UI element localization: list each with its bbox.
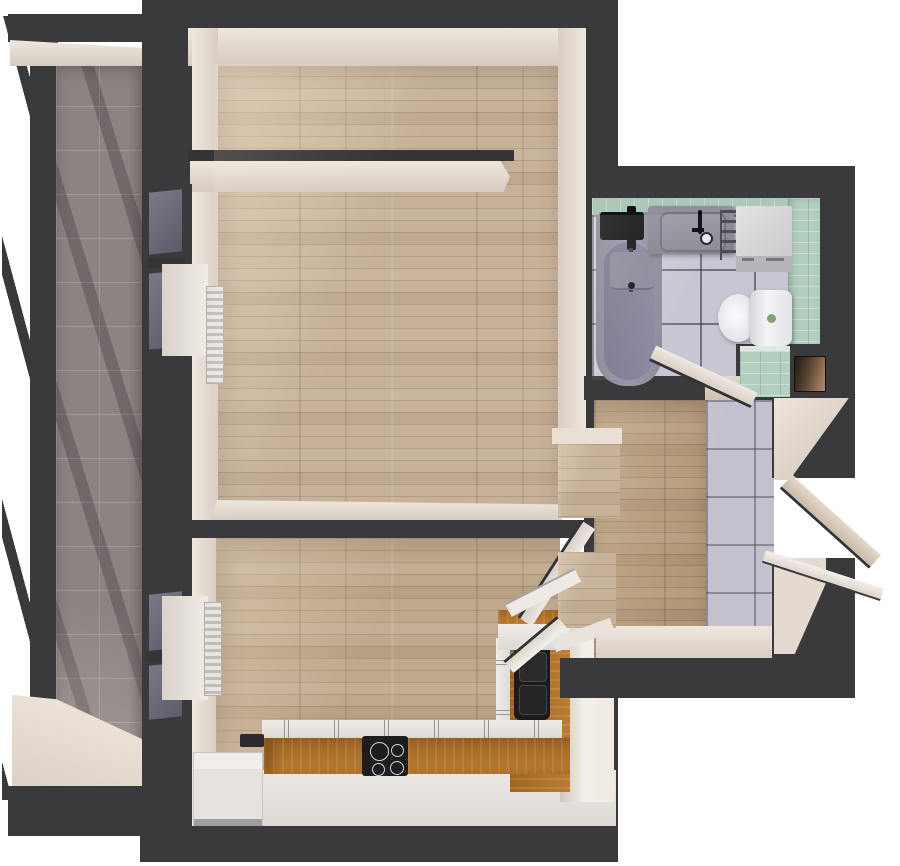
living-doorway-floor bbox=[558, 444, 620, 518]
living-window-pane-upper bbox=[149, 189, 182, 254]
niche-wall-top bbox=[188, 150, 514, 161]
side-cabinet bbox=[193, 752, 263, 830]
living-top-wall-face bbox=[188, 28, 584, 66]
washer-panel-seam bbox=[766, 258, 784, 261]
hallway-light-streak bbox=[596, 400, 774, 658]
cooktop bbox=[362, 736, 408, 776]
niche-wall-face bbox=[190, 161, 510, 192]
bathroom-right-tile-wall bbox=[788, 198, 820, 354]
top-wall bbox=[142, 0, 618, 28]
living-window-sill bbox=[162, 264, 208, 356]
partition-wall bbox=[188, 520, 594, 538]
living-right-wall-face bbox=[558, 28, 586, 444]
tub-faucet-block bbox=[600, 212, 644, 240]
washer-door-seam bbox=[742, 258, 754, 261]
glazing-frame-post bbox=[30, 36, 58, 796]
shower-drain-dot bbox=[628, 282, 635, 289]
sink-bowl-bottom bbox=[519, 685, 547, 715]
vanity-drain bbox=[700, 232, 713, 245]
living-room-floor bbox=[214, 64, 560, 522]
hallway-bottom-wall-face bbox=[596, 626, 774, 662]
bedroom-doorway-floor bbox=[558, 552, 616, 628]
vanity-faucet-spout bbox=[692, 228, 704, 232]
toilet-flush-button bbox=[767, 314, 776, 323]
kitchen-worktop-bottom bbox=[264, 738, 570, 774]
floor-vent bbox=[240, 734, 264, 747]
balcony-top-wall-face bbox=[10, 40, 142, 66]
living-radiator bbox=[206, 286, 224, 384]
living-door-jamb bbox=[552, 428, 622, 444]
bottom-wall bbox=[140, 826, 618, 862]
entrance-door-leaf bbox=[780, 474, 882, 568]
bedroom-radiator bbox=[204, 602, 222, 696]
balcony-top-wall bbox=[8, 14, 144, 42]
balcony-floor bbox=[56, 62, 143, 790]
washing-machine bbox=[736, 206, 792, 272]
vanity-basin bbox=[660, 212, 726, 252]
toilet-tank bbox=[750, 290, 792, 346]
floor-plan-render bbox=[0, 0, 900, 866]
bedroom-window-sill bbox=[162, 596, 208, 700]
shower-column bbox=[627, 206, 636, 250]
service-hatch bbox=[794, 356, 826, 392]
kitchen-cabinets-bottom bbox=[262, 720, 562, 738]
